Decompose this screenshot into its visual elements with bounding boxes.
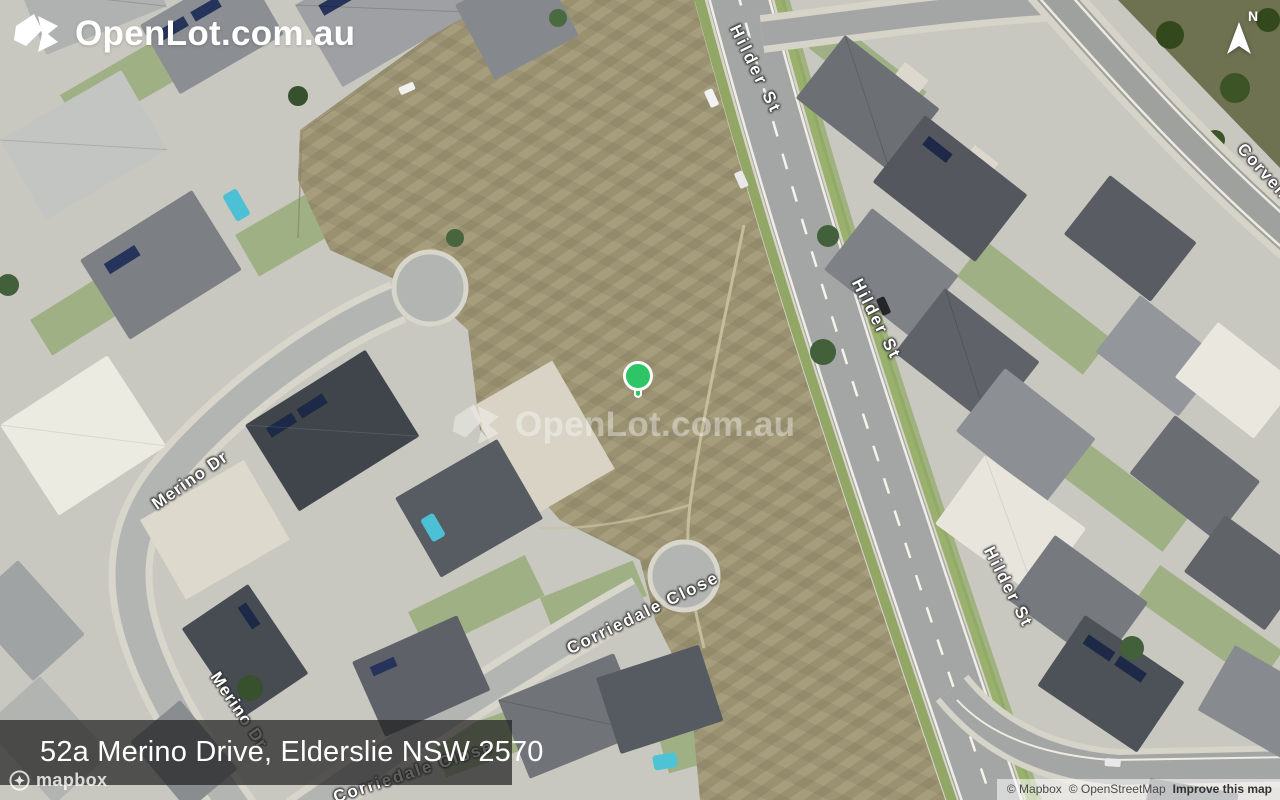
address-text: 52a Merino Drive, Elderslie NSW 2570 <box>40 736 544 769</box>
openlot-logo-icon <box>14 12 62 56</box>
improve-this-map-link[interactable]: Improve this map <box>1173 782 1272 796</box>
openlot-logo-text: OpenLot.com.au <box>75 14 355 54</box>
mapbox-wordmark: mapbox <box>36 770 107 791</box>
mapbox-logo-icon <box>8 769 31 792</box>
mapbox-attribution-link[interactable]: © Mapbox <box>1007 782 1062 796</box>
north-compass-icon[interactable]: N <box>1224 6 1268 63</box>
openlot-logo[interactable]: OpenLot.com.au <box>14 12 355 56</box>
mapbox-logo[interactable]: mapbox <box>8 769 107 792</box>
satellite-map[interactable]: Hilder St Hilder St Hilder St Corven Ave… <box>0 0 1280 800</box>
map-attribution: © Mapbox © OpenStreetMap Improve this ma… <box>997 779 1280 800</box>
compass-north-label: N <box>1248 8 1258 24</box>
marker-head <box>625 363 652 390</box>
osm-attribution-link[interactable]: © OpenStreetMap <box>1069 782 1166 796</box>
property-marker-pin[interactable] <box>620 350 656 409</box>
